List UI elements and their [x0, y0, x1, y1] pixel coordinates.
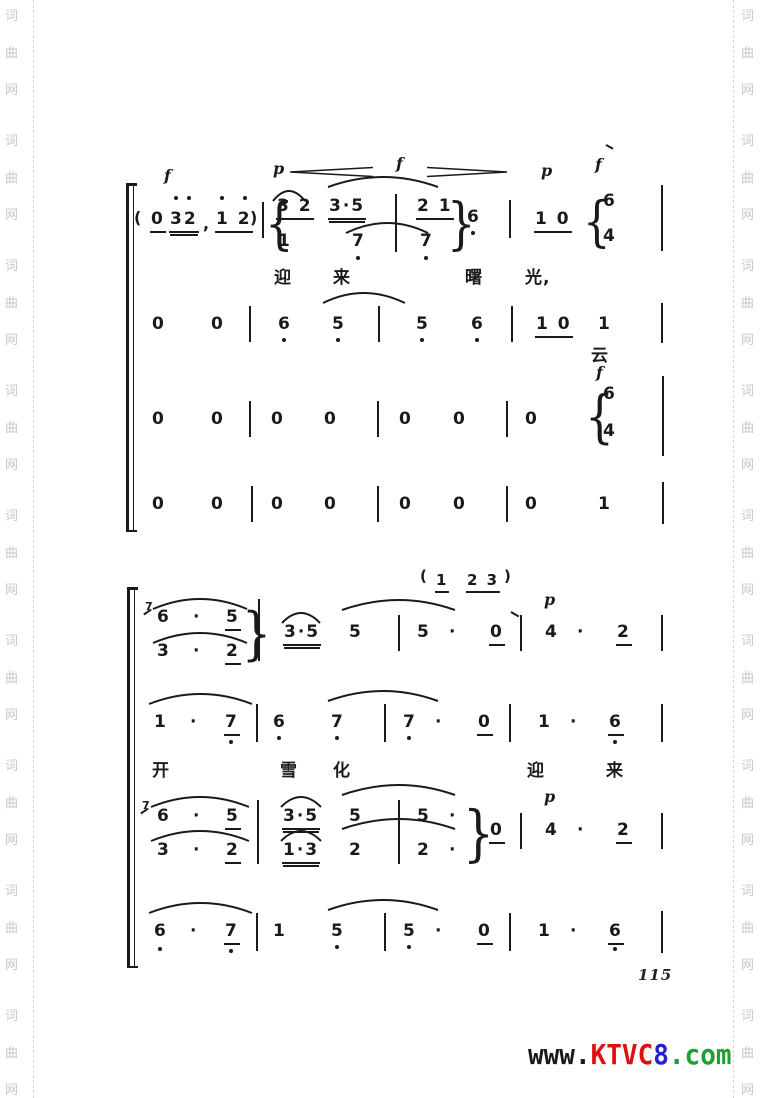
note: 32	[169, 209, 199, 233]
watermark-char: 网	[5, 1079, 18, 1098]
note: 7	[224, 712, 240, 736]
note: ·	[192, 641, 202, 663]
note: ·	[192, 840, 202, 862]
note: 6	[156, 806, 172, 828]
note: 0	[210, 314, 226, 336]
note: 6	[470, 314, 486, 336]
watermark-char: 曲	[5, 1042, 18, 1061]
slur	[341, 816, 456, 830]
note: 1 0	[534, 209, 572, 233]
dynamic-mark: p	[544, 590, 555, 609]
note: 1	[537, 712, 553, 734]
note: 0	[524, 494, 540, 516]
note: 4	[602, 226, 618, 248]
barline	[661, 303, 663, 343]
note: ·	[434, 921, 444, 943]
note: 6	[272, 712, 288, 734]
lyric: 来	[606, 756, 624, 781]
notation-mark: (	[134, 208, 141, 227]
note: ·	[576, 622, 586, 644]
dynamic-mark: f	[164, 166, 171, 185]
watermark-char: 曲	[741, 792, 754, 811]
note: 6	[602, 384, 618, 406]
slur	[327, 174, 439, 188]
barline	[398, 615, 400, 651]
barline	[257, 800, 259, 864]
watermark-char: 词	[741, 255, 754, 274]
note: 1 0	[535, 314, 573, 338]
note: 0	[210, 409, 226, 431]
barline	[384, 704, 386, 742]
note: 3·5	[282, 806, 320, 830]
note: 6	[608, 921, 624, 945]
watermark-char: 曲	[741, 417, 754, 436]
dynamic-mark: f	[595, 155, 602, 174]
grace-note: 7	[142, 799, 150, 812]
watermark-char: 曲	[5, 417, 18, 436]
watermark-char: 曲	[741, 667, 754, 686]
watermark-char: 网	[5, 829, 18, 848]
octave-dot	[243, 196, 247, 200]
note: 1	[435, 571, 449, 593]
watermark-char: 词	[741, 130, 754, 149]
barline	[662, 376, 664, 456]
barline	[377, 401, 379, 437]
octave-dot	[187, 196, 191, 200]
note: 7	[402, 712, 418, 734]
watermark-char: 网	[5, 704, 18, 723]
grace-slash-icon	[140, 808, 149, 815]
note: 2	[616, 820, 632, 844]
note: 5	[225, 806, 241, 830]
note: 6	[277, 314, 293, 336]
barline	[506, 401, 508, 437]
note: 2	[616, 622, 632, 646]
watermark-char: 曲	[741, 1042, 754, 1061]
watermark-char: 词	[5, 255, 18, 274]
barline	[251, 486, 253, 522]
note: 1	[153, 712, 169, 734]
watermark-url-segment: KTVC	[591, 1040, 654, 1072]
dynamic-mark: f	[596, 363, 603, 382]
watermark-char: 词	[5, 130, 18, 149]
note: 5	[330, 921, 346, 943]
watermark-char: 曲	[741, 292, 754, 311]
barline	[661, 185, 663, 251]
octave-dot	[229, 740, 233, 744]
note: 0	[323, 494, 339, 516]
octave-dot	[407, 945, 411, 949]
note: 0	[489, 622, 505, 646]
note: 5	[331, 314, 347, 336]
octave-dot	[220, 196, 224, 200]
watermark-char: 词	[5, 5, 18, 24]
barline	[520, 615, 522, 651]
note: 2 3	[466, 571, 500, 593]
watermark-char: 网	[741, 704, 754, 723]
watermark-char: 曲	[5, 542, 18, 561]
octave-dot	[229, 949, 233, 953]
barline	[506, 486, 508, 522]
note: 5	[416, 622, 432, 644]
note: ·	[189, 712, 199, 734]
note: ·	[192, 806, 202, 828]
slur	[327, 688, 439, 702]
barline	[256, 913, 258, 951]
lyric: 雪	[280, 756, 298, 781]
note: 6	[466, 207, 482, 229]
watermark-char: 网	[741, 579, 754, 598]
note: 5	[348, 622, 364, 644]
note: 0	[477, 712, 493, 736]
slur	[345, 220, 429, 234]
watermark-char: 词	[741, 630, 754, 649]
watermark-char: 曲	[5, 167, 18, 186]
watermark-char: 曲	[5, 667, 18, 686]
barline	[377, 486, 379, 522]
page-number: 115	[638, 966, 672, 984]
note: ·	[434, 712, 444, 734]
note: 1	[537, 921, 553, 943]
note: 1·3	[282, 840, 320, 864]
octave-dot	[356, 256, 360, 260]
octave-dot	[471, 231, 475, 235]
barline	[258, 599, 260, 661]
note: 6	[153, 921, 169, 943]
watermark-char: 曲	[741, 42, 754, 61]
octave-dot	[420, 338, 424, 342]
note: ·	[569, 921, 579, 943]
note: 5	[415, 314, 431, 336]
lyric: 化	[333, 756, 351, 781]
barline	[662, 482, 664, 524]
octave-dot	[174, 196, 178, 200]
watermark-dashed-line-right	[733, 0, 734, 1098]
note: 1	[597, 314, 613, 336]
dynamic-mark: p	[273, 159, 284, 178]
watermark-char: 词	[741, 880, 754, 899]
lyric: 曙	[465, 263, 483, 288]
slur	[341, 782, 456, 796]
note: 0	[270, 494, 286, 516]
lyric: 开	[152, 756, 170, 781]
note: ·	[189, 921, 199, 943]
note: 0	[151, 494, 167, 516]
note: 3	[156, 641, 172, 663]
watermark-char: 曲	[741, 542, 754, 561]
note: 6	[608, 712, 624, 736]
note: 2	[225, 840, 241, 864]
watermark-char: 词	[741, 505, 754, 524]
watermark-dashed-line-left	[33, 0, 34, 1098]
watermark-char: 词	[741, 1005, 754, 1024]
note: 0	[489, 820, 505, 844]
slur	[148, 900, 253, 914]
slur	[322, 290, 406, 304]
note: 0	[151, 314, 167, 336]
bottom-watermark: www.KTVC8.com	[528, 1040, 732, 1072]
octave-dot	[335, 736, 339, 740]
octave-dot	[335, 945, 339, 949]
watermark-char: 网	[741, 1079, 754, 1098]
barline	[378, 306, 380, 342]
hairpin-decrescendo-icon	[427, 165, 507, 179]
note: ·	[569, 712, 579, 734]
octave-dot	[336, 338, 340, 342]
watermark-char: 曲	[741, 917, 754, 936]
barline	[509, 200, 511, 238]
watermark-char: 曲	[5, 42, 18, 61]
note: 0	[398, 494, 414, 516]
note: 7	[419, 231, 435, 253]
watermark-char: 词	[741, 755, 754, 774]
barline	[249, 306, 251, 342]
note: 1	[277, 231, 293, 253]
note: 0	[270, 409, 286, 431]
watermark-char: 曲	[5, 292, 18, 311]
barline	[520, 813, 522, 849]
octave-dot	[282, 338, 286, 342]
slur	[148, 691, 253, 705]
octave-dot	[613, 947, 617, 951]
notation-mark: )	[250, 208, 257, 227]
lyric: 迎	[274, 263, 292, 288]
octave-dot	[158, 947, 162, 951]
note: 1 2	[215, 209, 253, 233]
lyric: 光,	[525, 263, 550, 288]
note: 0	[524, 409, 540, 431]
note: 0	[477, 921, 493, 945]
watermark-char: 词	[5, 880, 18, 899]
lyric: 来	[333, 263, 351, 288]
watermark-char: 网	[5, 204, 18, 223]
note: 3·5	[328, 196, 366, 220]
note: 0	[323, 409, 339, 431]
note: 0	[452, 409, 468, 431]
note: 7	[330, 712, 346, 734]
octave-dot	[277, 736, 281, 740]
watermark-char: 网	[5, 329, 18, 348]
grace-slash-icon	[143, 609, 152, 616]
score-page: fpfpf(032,1 2){3 23·52 1}17761 0{64迎来曙光,…	[0, 0, 760, 1098]
watermark-char: 网	[741, 829, 754, 848]
tick-mark	[606, 144, 614, 150]
watermark-char: 网	[5, 454, 18, 473]
note: 0	[398, 409, 414, 431]
slur	[341, 597, 456, 611]
dynamic-mark: p	[541, 161, 552, 180]
barline	[256, 704, 258, 742]
system-bracket	[127, 589, 135, 966]
system-bracket	[126, 185, 134, 530]
note: ·	[448, 622, 458, 644]
notation-mark: ,	[203, 214, 209, 233]
barline	[398, 800, 400, 864]
watermark-char: 网	[741, 79, 754, 98]
octave-dot	[407, 736, 411, 740]
note: 4	[602, 421, 618, 443]
barline	[509, 913, 511, 951]
watermark-url-segment: 8	[653, 1040, 669, 1072]
watermark-char: 词	[5, 380, 18, 399]
dynamic-mark: p	[544, 787, 555, 806]
watermark-char: 词	[741, 380, 754, 399]
note: 1	[272, 921, 288, 943]
notation-mark: (	[420, 567, 427, 585]
note: 2	[225, 641, 241, 665]
watermark-char: 词	[741, 5, 754, 24]
note: ·	[192, 607, 202, 629]
note: 4	[544, 820, 560, 842]
barline	[511, 306, 513, 342]
watermark-char: 网	[741, 329, 754, 348]
note: 6	[156, 607, 172, 629]
note: 0	[150, 209, 166, 233]
note: 0	[452, 494, 468, 516]
watermark-char: 词	[5, 755, 18, 774]
watermark-char: 曲	[5, 917, 18, 936]
dynamic-mark: f	[396, 154, 403, 173]
voice-brace: }	[242, 599, 271, 669]
note: 4	[544, 622, 560, 644]
watermark-char: 词	[5, 505, 18, 524]
watermark-char: 网	[5, 954, 18, 973]
note: ·	[576, 820, 586, 842]
notation-mark: )	[504, 567, 511, 585]
octave-dot	[424, 256, 428, 260]
barline	[384, 913, 386, 951]
note: 7	[224, 921, 240, 945]
octave-dot	[475, 338, 479, 342]
tick-mark	[511, 611, 520, 617]
watermark-char: 曲	[741, 167, 754, 186]
watermark-char: 网	[5, 79, 18, 98]
note: 3·5	[283, 622, 321, 646]
note: 6	[602, 191, 618, 213]
slur	[327, 897, 439, 911]
note: 1	[597, 494, 613, 516]
barline	[249, 401, 251, 437]
note: 5	[225, 607, 241, 631]
note: 0	[151, 409, 167, 431]
octave-dot	[613, 740, 617, 744]
barline	[661, 911, 663, 953]
note: ·	[448, 840, 458, 862]
barline	[509, 704, 511, 742]
note: 0	[210, 494, 226, 516]
note: 5	[402, 921, 418, 943]
barline	[661, 615, 663, 651]
note: 3	[156, 840, 172, 862]
lyric: 迎	[527, 756, 545, 781]
watermark-char: 词	[5, 630, 18, 649]
barline	[661, 813, 663, 849]
watermark-url-segment: www.	[528, 1040, 591, 1072]
watermark-char: 词	[5, 1005, 18, 1024]
watermark-url-segment: .com	[669, 1040, 732, 1072]
watermark-char: 网	[741, 454, 754, 473]
note: 2	[348, 840, 364, 862]
note: 2	[416, 840, 432, 862]
barline	[661, 704, 663, 742]
barline	[262, 202, 264, 238]
watermark-char: 网	[5, 579, 18, 598]
score-notation: fpfpf(032,1 2){3 23·52 1}17761 0{64迎来曙光,…	[0, 0, 760, 1098]
note: 7	[351, 231, 367, 253]
watermark-char: 网	[741, 204, 754, 223]
note: 3 2	[276, 196, 314, 220]
watermark-char: 曲	[5, 792, 18, 811]
watermark-char: 网	[741, 954, 754, 973]
